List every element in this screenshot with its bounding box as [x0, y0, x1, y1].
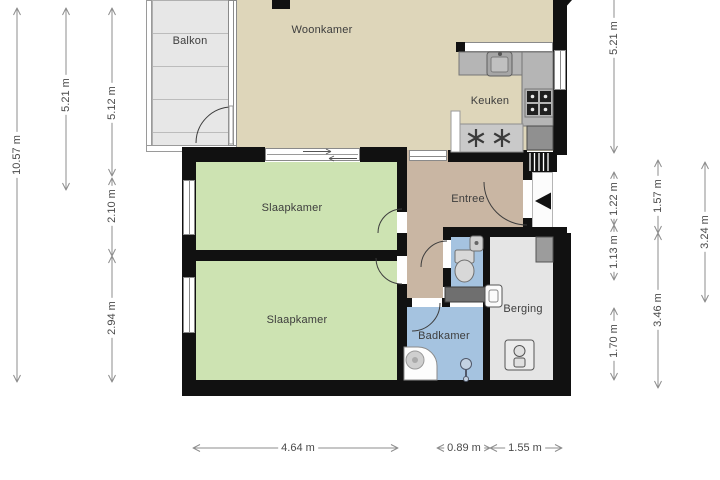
door-opening-badkamer [412, 298, 442, 307]
dim-label-left-2: 5.12 m [106, 83, 118, 123]
kitchen-partition-wall [456, 42, 553, 52]
floor-badkamer [407, 307, 483, 380]
wall-east-lower [553, 233, 571, 396]
dim-label-right-5: 3.46 m [652, 290, 664, 330]
dim-label-right-3: 1.70 m [608, 321, 620, 361]
room-label-slaapkamer-1: Slaapkamer [262, 202, 323, 214]
window-keuken [554, 50, 566, 90]
wall-top-stub [272, 0, 290, 9]
dim-label-left-total: 10.57 m [11, 132, 23, 178]
dim-label-right-1: 1.22 m [608, 179, 620, 219]
room-label-woonkamer: Woonkamer [292, 24, 353, 36]
dim-label-right-4: 1.57 m [652, 176, 664, 216]
dim-label-left-3: 2.10 m [106, 186, 118, 226]
dim-label-left-4: 2.94 m [106, 298, 118, 338]
room-label-keuken: Keuken [471, 95, 510, 107]
room-label-entree: Entree [451, 193, 485, 205]
floor-woonkamer [237, 0, 553, 151]
dim-label-bottom-2: 1.55 m [505, 442, 545, 454]
dim-label-right-0: 5.21 m [608, 18, 620, 58]
floor-stairwell-corridor [532, 172, 553, 233]
dim-label-right-6: 3.24 m [699, 212, 711, 252]
bathroom-cabinet-icon [445, 287, 488, 302]
wall-south [182, 380, 571, 396]
wall-bedroom-top-a [182, 147, 265, 162]
wall-berging-west [483, 237, 490, 380]
wall-entree-top [448, 150, 527, 162]
wall-entree-bottom [443, 227, 567, 237]
dim-label-bottom-0: 4.64 m [278, 442, 318, 454]
threshold-woonkamer-entree [409, 150, 447, 161]
floor-toilet [451, 237, 483, 287]
wall-bedroom-divider [196, 250, 405, 261]
wall-bedroom-top-b [360, 147, 407, 162]
room-label-slaapkamer-2: Slaapkamer [267, 314, 328, 326]
balcony-wall-left [146, 0, 152, 152]
door-opening-front-door [523, 180, 532, 218]
door-opening-toilet [443, 240, 451, 268]
dim-label-left-1: 5.21 m [60, 75, 72, 115]
balcony-glass-wall [228, 0, 237, 146]
room-label-berging: Berging [503, 303, 542, 315]
floor-balkon [152, 0, 229, 146]
dim-label-right-2: 1.13 m [608, 232, 620, 272]
room-label-badkamer: Badkamer [418, 330, 470, 342]
room-label-balkon: Balkon [173, 35, 208, 47]
floor-hallway [407, 227, 443, 299]
door-opening-slaapkamer-2 [397, 256, 407, 284]
floor-plan: Woonkamer Balkon Keuken Entree Slaapkame… [0, 0, 720, 480]
sliding-door-woonkamer-slaapkamer [265, 148, 360, 161]
dim-label-bottom-1: 0.89 m [444, 442, 484, 454]
door-opening-slaapkamer-1 [397, 212, 407, 233]
kitchen-partition-stub [456, 42, 465, 52]
window-slaapkamer-2 [183, 277, 195, 333]
window-slaapkamer-1 [183, 180, 195, 235]
